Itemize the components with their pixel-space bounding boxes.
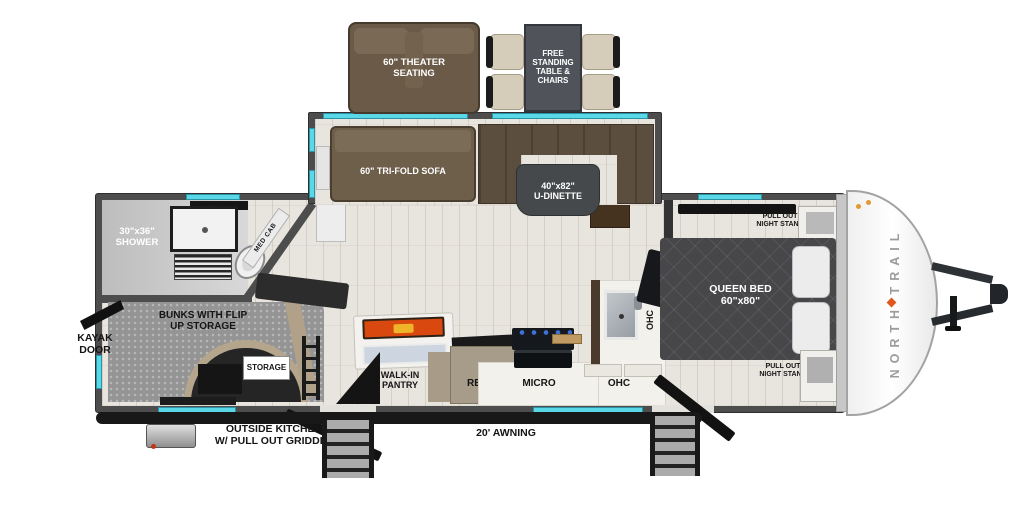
theater-seating-label: 60" THEATER SEATING [352, 56, 476, 82]
storage-box: STORAGE [243, 356, 290, 380]
shower-drain [202, 227, 208, 233]
sofa-back [335, 130, 471, 152]
dining-chair [582, 34, 616, 70]
pillow [792, 302, 830, 354]
dining-chair [490, 74, 524, 110]
cooktop [362, 317, 445, 340]
clearance-light [866, 200, 871, 205]
slide-end-table [316, 146, 330, 190]
nightstand-bottom-cabinet [800, 350, 838, 402]
counter-drawer [584, 364, 622, 377]
counter-end-panel [591, 280, 600, 364]
pillow [792, 246, 830, 298]
window [96, 355, 102, 389]
awning-bar [96, 412, 702, 424]
chair-back [613, 36, 620, 68]
entry-steps [650, 416, 700, 476]
window [492, 113, 648, 119]
cutting-board [552, 334, 582, 344]
u-dinette-label: 40"x82" U-DINETTE [516, 176, 600, 206]
hitch-frame-bar [931, 262, 993, 284]
microwave [514, 350, 572, 368]
pantry-label: WALK-IN PANTRY [370, 366, 430, 394]
bunk-ladder [302, 336, 320, 400]
window [698, 194, 762, 200]
free-standing-table-label: FREE STANDING TABLE & CHAIRS [524, 30, 582, 106]
kitchen-sink [604, 290, 638, 340]
tri-fold-sofa [330, 126, 476, 202]
hall-cabinet [316, 202, 346, 242]
hitch-frame-bar [931, 304, 993, 326]
window [186, 194, 240, 200]
entry-steps [322, 420, 374, 478]
tongue-jack [950, 296, 957, 328]
window [309, 128, 315, 152]
chair-back [486, 76, 493, 108]
bath-mat [174, 254, 232, 280]
under-bunk-box [198, 364, 242, 394]
tongue-jack-foot [945, 326, 961, 331]
hitch-coupler [990, 284, 1008, 304]
shower-stall [170, 206, 238, 252]
floorplan-canvas: 30"x36" SHOWER MED CAB STORAGE BUNKS WIT… [0, 0, 1024, 512]
window-shade [160, 397, 236, 405]
awning-label: 20' AWNING [446, 428, 566, 440]
bunks-label: BUNKS WITH FLIP UP STORAGE [128, 306, 278, 336]
theater-back-cushion [420, 28, 474, 54]
window [309, 170, 315, 198]
kayak-door-label: KAYAK DOOR [55, 331, 135, 359]
chair-back [486, 36, 493, 68]
chair-back [613, 76, 620, 108]
clearance-light [856, 204, 861, 209]
tri-fold-sofa-label: 60" TRI-FOLD SOFA [334, 166, 472, 176]
micro-label: MICRO [506, 378, 572, 389]
theater-back-cushion [354, 28, 408, 54]
ohc-label: OHC [590, 378, 648, 389]
dining-chair [582, 74, 616, 110]
wardrobe-top [798, 206, 840, 240]
shower-label: 30"x36" SHOWER [104, 224, 170, 252]
counter-drawer [624, 364, 662, 377]
sink-drain [619, 314, 624, 319]
dining-chair [490, 34, 524, 70]
